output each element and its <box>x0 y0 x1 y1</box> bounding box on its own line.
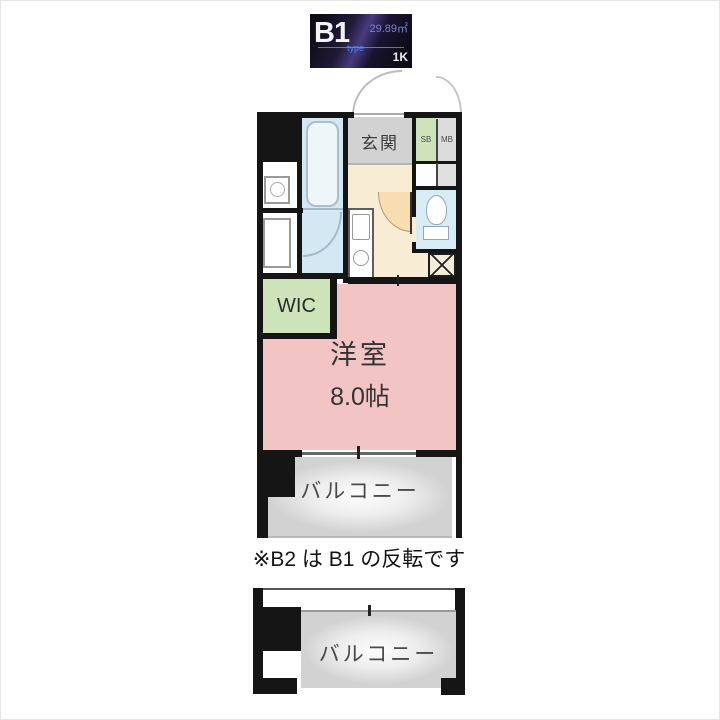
washing-machine-icon <box>263 218 291 268</box>
room-window-tick <box>397 275 399 286</box>
outer-door-arc-icon <box>436 76 462 114</box>
wall-ps-bottom <box>412 186 462 190</box>
unit-type-badge: B1 type 29.89㎡ 1K <box>310 14 412 68</box>
entrance-door-arc-icon <box>352 70 402 115</box>
bath-divider-line <box>302 208 343 210</box>
main-room-label-box: 洋室 <box>280 336 440 368</box>
floor-plan-image: B1 type 29.89㎡ 1K SB MB WIC <box>0 0 720 720</box>
lower-unit-top-line <box>253 588 465 590</box>
toilet-tank-icon <box>423 226 449 240</box>
wall-sb-left <box>412 117 416 217</box>
walk-in-closet: WIC <box>263 279 330 333</box>
badge-divider <box>318 47 404 48</box>
sb-mb-divider <box>436 119 438 161</box>
balcony-left-strip <box>257 450 268 538</box>
entrance-opening-line <box>354 113 404 115</box>
wall-left <box>257 112 263 457</box>
shoe-box: SB <box>416 117 436 161</box>
unit-name-label: B1 <box>314 17 349 50</box>
plan-type-label: 1K <box>366 50 408 64</box>
pipe-space-cell-2 <box>438 164 456 186</box>
main-room-size-label: 8.0帖 <box>330 377 390 413</box>
washbasin-bowl-icon <box>270 182 285 197</box>
unit-area-label: 29.89㎡ <box>346 20 408 36</box>
balcony-label-box: バルコニー <box>278 477 442 503</box>
lower-balcony-label-box: バルコニー <box>296 640 461 666</box>
toilet-icon <box>426 195 447 225</box>
pipe-space-cell <box>416 164 436 186</box>
balcony-window-tick <box>357 446 360 459</box>
lower-balcony-window-tick <box>368 605 371 616</box>
main-room-size-box: 8.0帖 <box>280 380 440 410</box>
column-top-left <box>257 112 302 162</box>
mirror-note: ※B2 は B1 の反転です <box>246 544 472 572</box>
entrance-label: 玄関 <box>361 129 399 154</box>
lower-unit-corner-left <box>257 678 297 694</box>
wall-cells-bath <box>297 162 302 278</box>
wall-wic-right <box>330 279 337 339</box>
meter-box-label: MB <box>441 135 453 144</box>
stove-icon <box>353 250 369 266</box>
entrance-label-box: 玄関 <box>348 117 412 165</box>
ps-divider <box>436 163 438 186</box>
balcony-bottom-line <box>268 536 452 538</box>
washer-space-hatch <box>428 253 456 277</box>
kitchen-sink-icon <box>352 214 370 240</box>
wall-right <box>456 112 462 538</box>
lower-unit-corner-right <box>441 678 465 695</box>
bathtub-icon <box>306 121 339 207</box>
meter-box: MB <box>438 117 456 161</box>
lower-balcony-label: バルコニー <box>319 638 439 668</box>
wic-label: WIC <box>277 295 316 318</box>
mirror-note-text: ※B2 は B1 の反転です <box>253 543 465 573</box>
wall-room-top <box>348 277 462 284</box>
wall-toilet-bottom <box>412 249 462 253</box>
unit-type-suffix: type <box>347 43 364 53</box>
wall-balcony-top-right <box>416 450 462 457</box>
balcony-label: バルコニー <box>300 475 420 505</box>
lower-balcony-window-line <box>301 610 456 612</box>
shoe-box-label: SB <box>421 135 432 144</box>
main-room-label: 洋室 <box>330 333 390 372</box>
